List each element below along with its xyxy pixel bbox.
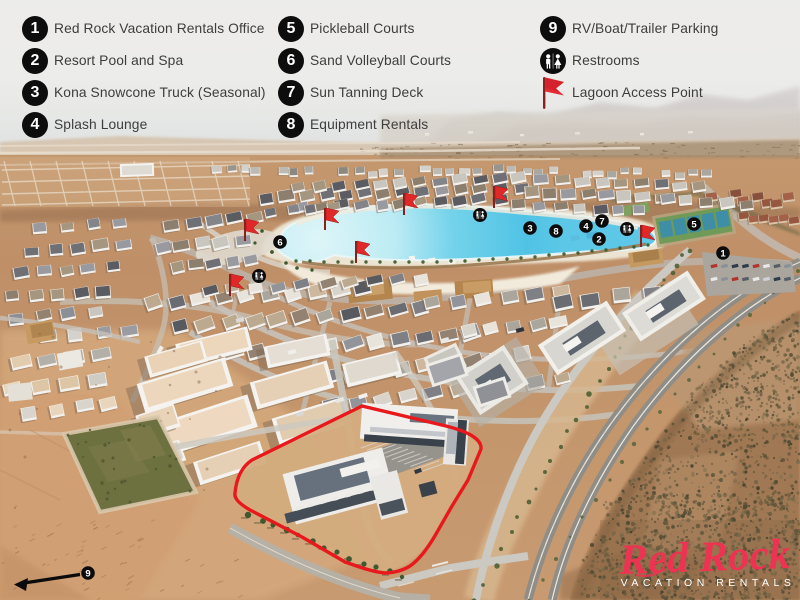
svg-text:5: 5 (691, 219, 697, 230)
svg-text:VACATION RENTALS: VACATION RENTALS (621, 577, 796, 589)
svg-text:4: 4 (583, 221, 589, 232)
svg-text:6: 6 (277, 237, 282, 248)
svg-text:7: 7 (599, 216, 604, 227)
svg-text:2: 2 (596, 234, 601, 245)
svg-text:9: 9 (85, 568, 90, 579)
svg-text:1: 1 (720, 248, 726, 259)
svg-text:8: 8 (553, 226, 558, 237)
svg-text:3: 3 (527, 223, 532, 234)
